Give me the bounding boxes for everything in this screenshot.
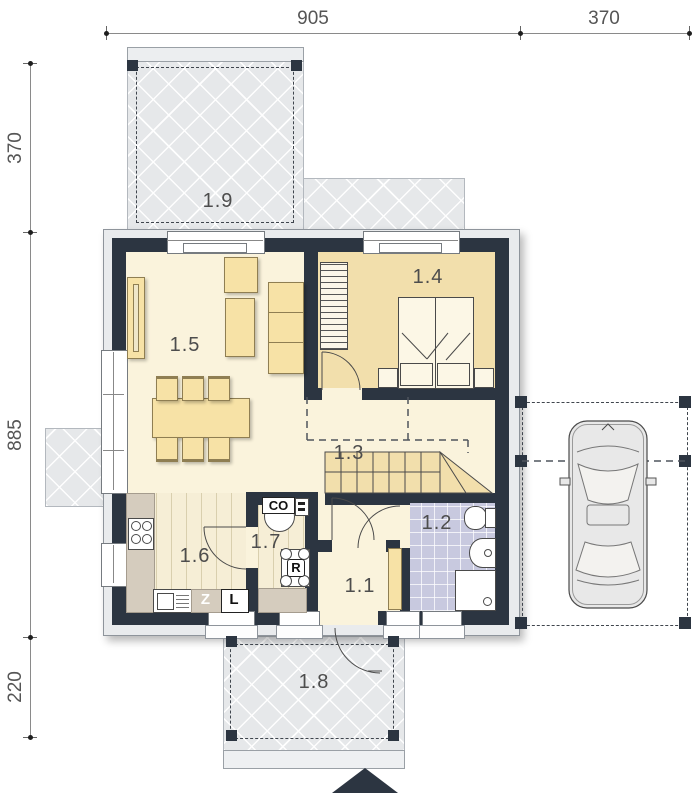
dim-dot: [28, 61, 33, 66]
chair: [156, 376, 178, 401]
dim-dot: [518, 31, 523, 36]
glazed-door-living-west: [101, 350, 128, 494]
window-inner-sill: [183, 243, 247, 253]
terrace-1-9-edge: [127, 47, 304, 62]
burner: [131, 534, 141, 544]
chair: [182, 437, 204, 462]
window-mullion: [167, 240, 263, 241]
nightstand: [378, 368, 398, 388]
sideboard-detail: [133, 284, 139, 352]
panel-switch: [298, 502, 305, 505]
dimension-label-885: 885: [5, 395, 27, 475]
wall-kitchen-utility-a: [246, 505, 258, 527]
room-label-bedroom: 1.4: [406, 266, 450, 289]
armchair: [224, 257, 258, 293]
dimension-label-220: 220: [5, 647, 27, 727]
window-mullion: [113, 352, 114, 490]
room-label-kitchen: 1.6: [173, 545, 217, 568]
chair: [208, 376, 230, 401]
carport-post: [515, 455, 527, 467]
room-label-hall: 1.3: [327, 442, 371, 465]
window-sill: [276, 625, 323, 639]
chair: [182, 376, 204, 401]
sofa-seam: [269, 312, 303, 313]
carport-post: [679, 617, 691, 629]
entry-closet: [388, 548, 402, 610]
window-mullion: [103, 450, 124, 451]
room-label-terrace-garden: 1.9: [196, 190, 240, 213]
dim-dot: [28, 635, 33, 640]
burner: [142, 534, 152, 544]
basin-tap: [484, 549, 492, 557]
window-mullion: [363, 240, 458, 241]
sink-basin: [157, 593, 174, 610]
room-label-living: 1.5: [163, 334, 207, 357]
window-mullion: [113, 545, 114, 583]
carport-post: [515, 617, 527, 629]
vent-unit-label: R: [287, 559, 305, 577]
nightstand: [474, 368, 494, 388]
terrace-post: [291, 60, 302, 71]
wardrobe: [320, 262, 348, 350]
terrace-post: [388, 730, 399, 741]
wall-living-bedroom: [304, 252, 318, 397]
chair: [208, 437, 230, 462]
sofa-seam: [269, 342, 303, 343]
entrance-arrow-icon: [332, 768, 398, 793]
room-label-terrace-front: 1.8: [292, 671, 336, 694]
shower-drain: [483, 597, 492, 606]
window-sill: [419, 625, 465, 639]
dishwasher-label: Z: [191, 589, 220, 611]
boiler-label: CO: [262, 497, 295, 514]
dimension-label-370-top: 370: [564, 8, 644, 30]
toilet: [464, 506, 487, 530]
terrace-post: [388, 636, 399, 647]
wall-bathroom-north: [408, 493, 495, 503]
room-label-utility: 1.7: [244, 531, 288, 554]
terrace-1-8-step: [223, 750, 405, 769]
wall-east: [495, 238, 509, 625]
toilet-tank: [485, 508, 496, 528]
kitchen-sink: [153, 589, 193, 613]
sink-drainer: [176, 593, 189, 608]
room-label-bathroom: 1.2: [415, 512, 459, 535]
panel-switch: [298, 508, 305, 511]
carport-dashed-outline: [522, 402, 688, 626]
kitchen-counter: [126, 493, 155, 613]
carport-post: [679, 396, 691, 408]
dim-dot: [687, 31, 692, 36]
wall-stairs-south: [325, 493, 408, 505]
coffee-table: [225, 298, 255, 357]
dimension-label-905: 905: [273, 8, 353, 30]
burner: [131, 521, 141, 531]
bed-seam: [435, 298, 436, 388]
terrace-post: [226, 730, 237, 741]
fridge-label: L: [221, 589, 247, 611]
wall-bedroom-south-b: [362, 388, 495, 400]
window-inner-sill: [379, 243, 442, 253]
floor-plan: 905 370 370 885 220 1.9 1.8: [0, 0, 696, 800]
dim-dot: [104, 31, 109, 36]
side-terrace: [45, 428, 105, 507]
dim-dot: [28, 230, 33, 235]
chair: [156, 437, 178, 462]
wall-bedroom-south-a: [304, 388, 322, 400]
terrace-post: [127, 60, 138, 71]
bathroom-door-opening: [400, 505, 410, 548]
dimension-line-top: [106, 33, 689, 34]
dining-table: [152, 398, 250, 438]
window-kitchen-west: [101, 543, 128, 587]
burner: [142, 521, 152, 531]
carport-post: [515, 396, 527, 408]
bed-pillow: [400, 363, 433, 386]
sofa: [268, 282, 304, 374]
roofed-area-hatch: [302, 178, 465, 231]
utility-counter: [258, 588, 307, 613]
bedroom-door-opening: [322, 388, 362, 400]
electric-panel: [295, 498, 309, 516]
terrace-post: [226, 636, 237, 647]
bed-pillow: [437, 363, 470, 386]
entry-door-opening: [320, 611, 378, 625]
wall-stub-corridor-left: [318, 540, 332, 552]
sideboard: [127, 277, 145, 359]
dim-dot: [28, 735, 33, 740]
room-label-entry: 1.1: [338, 575, 382, 598]
carport-post: [679, 455, 691, 467]
window-mullion: [103, 394, 124, 395]
dimension-label-370-left: 370: [5, 108, 27, 188]
